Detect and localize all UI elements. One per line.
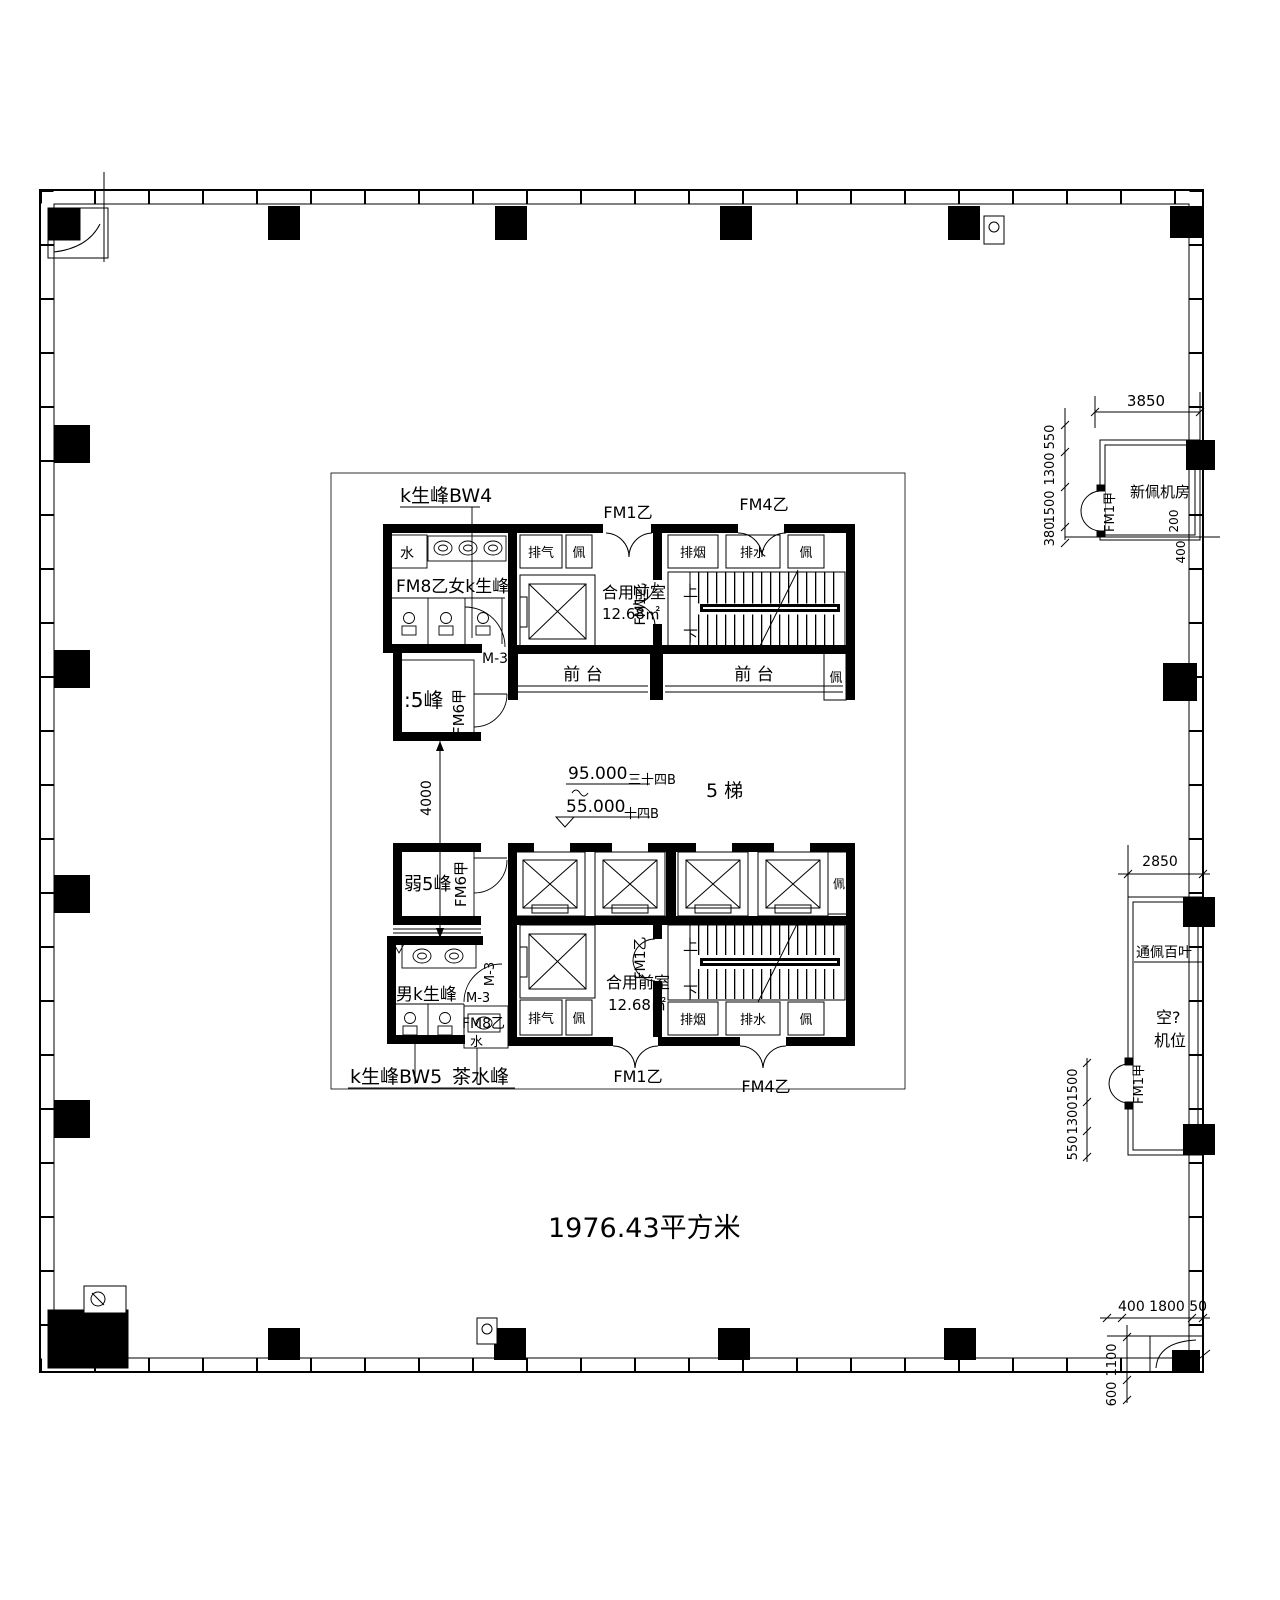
corner-detail-top-left	[48, 172, 108, 262]
label-door-fm6a-lower: FM6甲	[452, 861, 470, 907]
label-room-5feng: :5峰	[404, 688, 443, 712]
column	[1170, 206, 1203, 238]
label-door-m3-lower: M-3	[466, 991, 490, 1006]
label-toilet-bw5: k生峰BW5	[350, 1066, 442, 1088]
label-exhaust-upper: 排气	[528, 545, 554, 561]
label-elevation-low: 55.000	[566, 797, 625, 817]
column	[944, 1328, 976, 1360]
door-fm4b-bottom	[740, 1046, 786, 1068]
column	[54, 425, 90, 463]
elevator-bank	[515, 852, 848, 916]
label-door-m3-lower-vert: M-3	[483, 962, 498, 986]
label-door-fm1a-top: FM1甲	[1103, 492, 1118, 532]
column	[268, 206, 300, 240]
dim-380: 380	[1043, 522, 1058, 547]
toilet-fixture	[440, 1013, 451, 1024]
label-front-desk-right: 前 台	[734, 665, 773, 685]
floor-plan-canvas: k生峰BW4 FM8乙女k生峰 水 M-3 :5峰 FM6甲 排气 佩 合用前室	[0, 0, 1280, 1600]
label-stair-up-upper: 上	[683, 582, 698, 600]
dim-1500-bottom: 1500	[1066, 1068, 1081, 1101]
door-fm1b-bottom	[613, 1046, 658, 1068]
label-smoke-lower: 排烟	[680, 1013, 706, 1028]
label-door-fm4b-top: FM4乙	[739, 495, 788, 514]
wall-fixture-bottom	[477, 1318, 497, 1344]
dim-1300-bottom: 1300	[1066, 1101, 1081, 1134]
label-weak-5feng: 弱5峰	[404, 874, 451, 895]
label-ac-line2: 机位	[1154, 1031, 1186, 1050]
label-stair-count: 5 梯	[706, 780, 743, 802]
column	[495, 206, 527, 240]
corner-detail-bottom-left	[48, 1286, 128, 1368]
dim-550-bottom: 550	[1066, 1136, 1081, 1161]
dim-200: 200	[1167, 510, 1181, 533]
dim-600: 600	[1105, 1382, 1120, 1407]
label-stair-down-upper: 下	[683, 627, 698, 645]
dim-1100: 1100	[1105, 1343, 1120, 1376]
label-drain-lower: 排水	[740, 1013, 766, 1028]
column	[1163, 663, 1197, 701]
label-door-fm1a-bottom: FM1甲	[1132, 1064, 1147, 1104]
label-pei-shaft: 佩	[799, 1013, 812, 1028]
dim-1300-top: 1300	[1043, 452, 1058, 485]
label-vestibule-area-lower: 12.68㎡	[608, 996, 666, 1014]
column	[494, 1328, 526, 1360]
label-smoke-upper: 排烟	[680, 546, 706, 561]
door-swing	[474, 860, 507, 893]
label-water-closet-lower: 水	[470, 1035, 483, 1050]
label-elevation-high-floor: 三十四B	[628, 773, 676, 788]
toilet-fixture	[478, 613, 489, 624]
label-fresh-air-room: 新佩机房	[1130, 483, 1190, 501]
label-mens-toilet: 男k生峰	[396, 985, 457, 1005]
core-lower: 佩 弱5峰 FM6甲 男k生峰	[348, 843, 855, 1096]
detail-fresh-air-room: 3850 550 1300 1500 380 新佩机房 FM1甲 200 400	[1043, 392, 1220, 563]
toilet-fixture	[441, 613, 452, 624]
label-total-area: 1976.43平方米	[548, 1213, 741, 1244]
elevator-lower	[520, 925, 595, 998]
dim-400-top: 400	[1174, 541, 1188, 564]
core-upper: k生峰BW4 FM8乙女k生峰 水 M-3 :5峰 FM6甲 排气 佩 合用前室	[383, 485, 855, 741]
label-door-fm1b-top: FM1乙	[603, 503, 652, 522]
label-womens-toilet: FM8乙女k生峰	[396, 577, 509, 597]
label-pei-shaft: 佩	[572, 1012, 585, 1027]
column	[54, 875, 90, 913]
column	[948, 206, 980, 240]
label-elevation-low-floor: 十四B	[624, 807, 659, 822]
elevator-upper	[520, 575, 595, 648]
dim-4000: 4000	[419, 780, 435, 816]
door-swing	[474, 694, 507, 727]
label-stair-down-lower: 下	[683, 983, 698, 1001]
label-door-m3-upper: M-3	[482, 651, 508, 667]
label-exhaust-lower: 排气	[528, 1011, 554, 1027]
wall-fixture-top	[984, 216, 1004, 244]
toilet-fixture	[404, 613, 415, 624]
column	[720, 206, 752, 240]
dim-400-1800-50: 400 1800 50	[1118, 1299, 1207, 1315]
dim-2850: 2850	[1142, 854, 1178, 870]
corner-detail-bottom-right	[1107, 1336, 1210, 1372]
label-pei-shaft: 佩	[572, 546, 585, 561]
column	[54, 650, 90, 688]
dim-1500-top: 1500	[1043, 490, 1058, 523]
door-fm1b-top	[606, 533, 652, 557]
label-door-fm1b-lower-side: FM1乙	[633, 936, 649, 979]
label-door-fm1b-bottom: FM1乙	[613, 1067, 662, 1086]
label-door-fm8b-lower: FM8乙	[462, 1016, 505, 1032]
dim-550-top: 550	[1043, 425, 1058, 450]
floor-plan-page: k生峰BW4 FM8乙女k生峰 水 M-3 :5峰 FM6甲 排气 佩 合用前室	[0, 0, 1280, 1600]
label-pei-shaft: 佩	[799, 546, 812, 561]
label-pei-shaft: 佩	[833, 877, 845, 891]
column	[268, 1328, 300, 1360]
label-ac-line1: 空?	[1156, 1008, 1181, 1027]
label-tea-room: 茶水峰	[452, 1066, 509, 1088]
toilet-fixture	[405, 1013, 416, 1024]
label-toilet-bw4: k生峰BW4	[400, 485, 492, 507]
dim-3850: 3850	[1127, 392, 1165, 410]
front-desk-counters	[518, 686, 843, 692]
column	[718, 1328, 750, 1360]
label-stair-up-lower: 上	[683, 936, 698, 954]
label-pei-shaft: 佩	[829, 671, 842, 686]
label-door-fm4b-bottom: FM4乙	[741, 1077, 790, 1096]
label-door-fm6a-upper: FM6甲	[450, 689, 468, 735]
label-water-closet: 水	[400, 546, 414, 562]
column	[54, 1100, 90, 1138]
label-louver: 通佩百叶	[1136, 945, 1192, 961]
label-elevation-high: 95.000	[568, 764, 627, 784]
label-front-desk-left: 前 台	[563, 665, 602, 685]
